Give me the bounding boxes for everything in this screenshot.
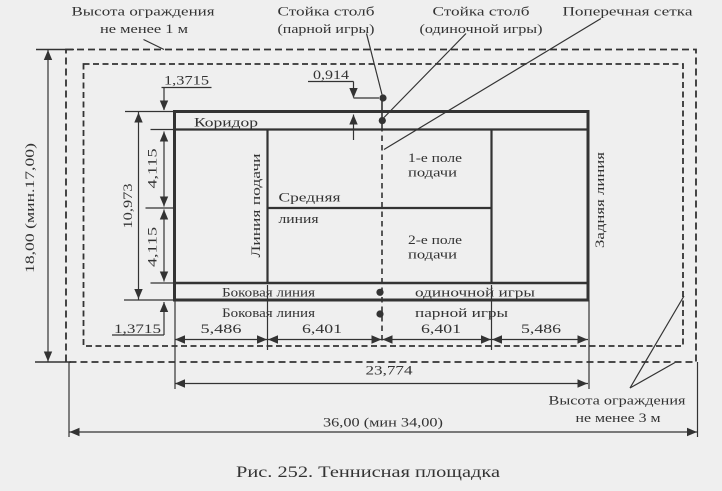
svg-text:Линия подачи: Линия подачи bbox=[248, 153, 263, 257]
svg-text:подачи: подачи bbox=[408, 247, 457, 262]
svg-text:6,401: 6,401 bbox=[421, 321, 461, 336]
svg-text:Коридор: Коридор bbox=[194, 115, 258, 130]
svg-text:линия: линия bbox=[279, 211, 319, 226]
svg-text:Боковая линия: Боковая линия bbox=[222, 305, 315, 320]
svg-text:1,3715: 1,3715 bbox=[114, 321, 161, 336]
svg-text:4,115: 4,115 bbox=[145, 227, 160, 267]
svg-text:не менее 1 м: не менее 1 м bbox=[100, 21, 188, 36]
svg-text:Боковая линия: Боковая линия bbox=[222, 285, 315, 300]
svg-text:5,486: 5,486 bbox=[201, 321, 243, 336]
svg-text:18,00 (мин.17,00): 18,00 (мин.17,00) bbox=[22, 143, 37, 273]
svg-text:Высота ограждения: Высота ограждения bbox=[549, 393, 686, 408]
svg-text:Высота ограждения: Высота ограждения bbox=[72, 4, 215, 19]
svg-text:Стойка столб: Стойка столб bbox=[278, 4, 375, 19]
svg-text:подачи: подачи bbox=[408, 165, 457, 180]
svg-text:23,774: 23,774 bbox=[366, 363, 414, 378]
svg-text:Рис. 252. Теннисная площадка: Рис. 252. Теннисная площадка bbox=[236, 464, 500, 481]
svg-text:10,973: 10,973 bbox=[120, 184, 135, 229]
svg-text:2-е поле: 2-е поле bbox=[408, 232, 462, 247]
svg-text:36,00 (мин 34,00): 36,00 (мин 34,00) bbox=[323, 415, 443, 430]
svg-text:одиночной игры: одиночной игры bbox=[415, 285, 535, 300]
svg-text:1,3715: 1,3715 bbox=[164, 73, 209, 88]
svg-text:1-е поле: 1-е поле bbox=[408, 150, 462, 165]
svg-text:Задняя линия: Задняя линия bbox=[592, 152, 607, 248]
svg-text:Стойка столб: Стойка столб bbox=[433, 4, 530, 19]
svg-text:0,914: 0,914 bbox=[313, 67, 350, 82]
svg-text:5,486: 5,486 bbox=[521, 321, 562, 336]
svg-text:(одиночной игры): (одиночной игры) bbox=[420, 21, 543, 36]
svg-text:не менее 3 м: не менее 3 м bbox=[576, 410, 661, 425]
svg-text:Средняя: Средняя bbox=[279, 190, 341, 205]
svg-text:6,401: 6,401 bbox=[302, 321, 342, 336]
svg-text:Поперечная сетка: Поперечная сетка bbox=[563, 4, 693, 19]
svg-text:(парной игры): (парной игры) bbox=[278, 21, 375, 36]
svg-text:4,115: 4,115 bbox=[145, 149, 160, 189]
svg-text:парной игры: парной игры bbox=[415, 305, 508, 320]
